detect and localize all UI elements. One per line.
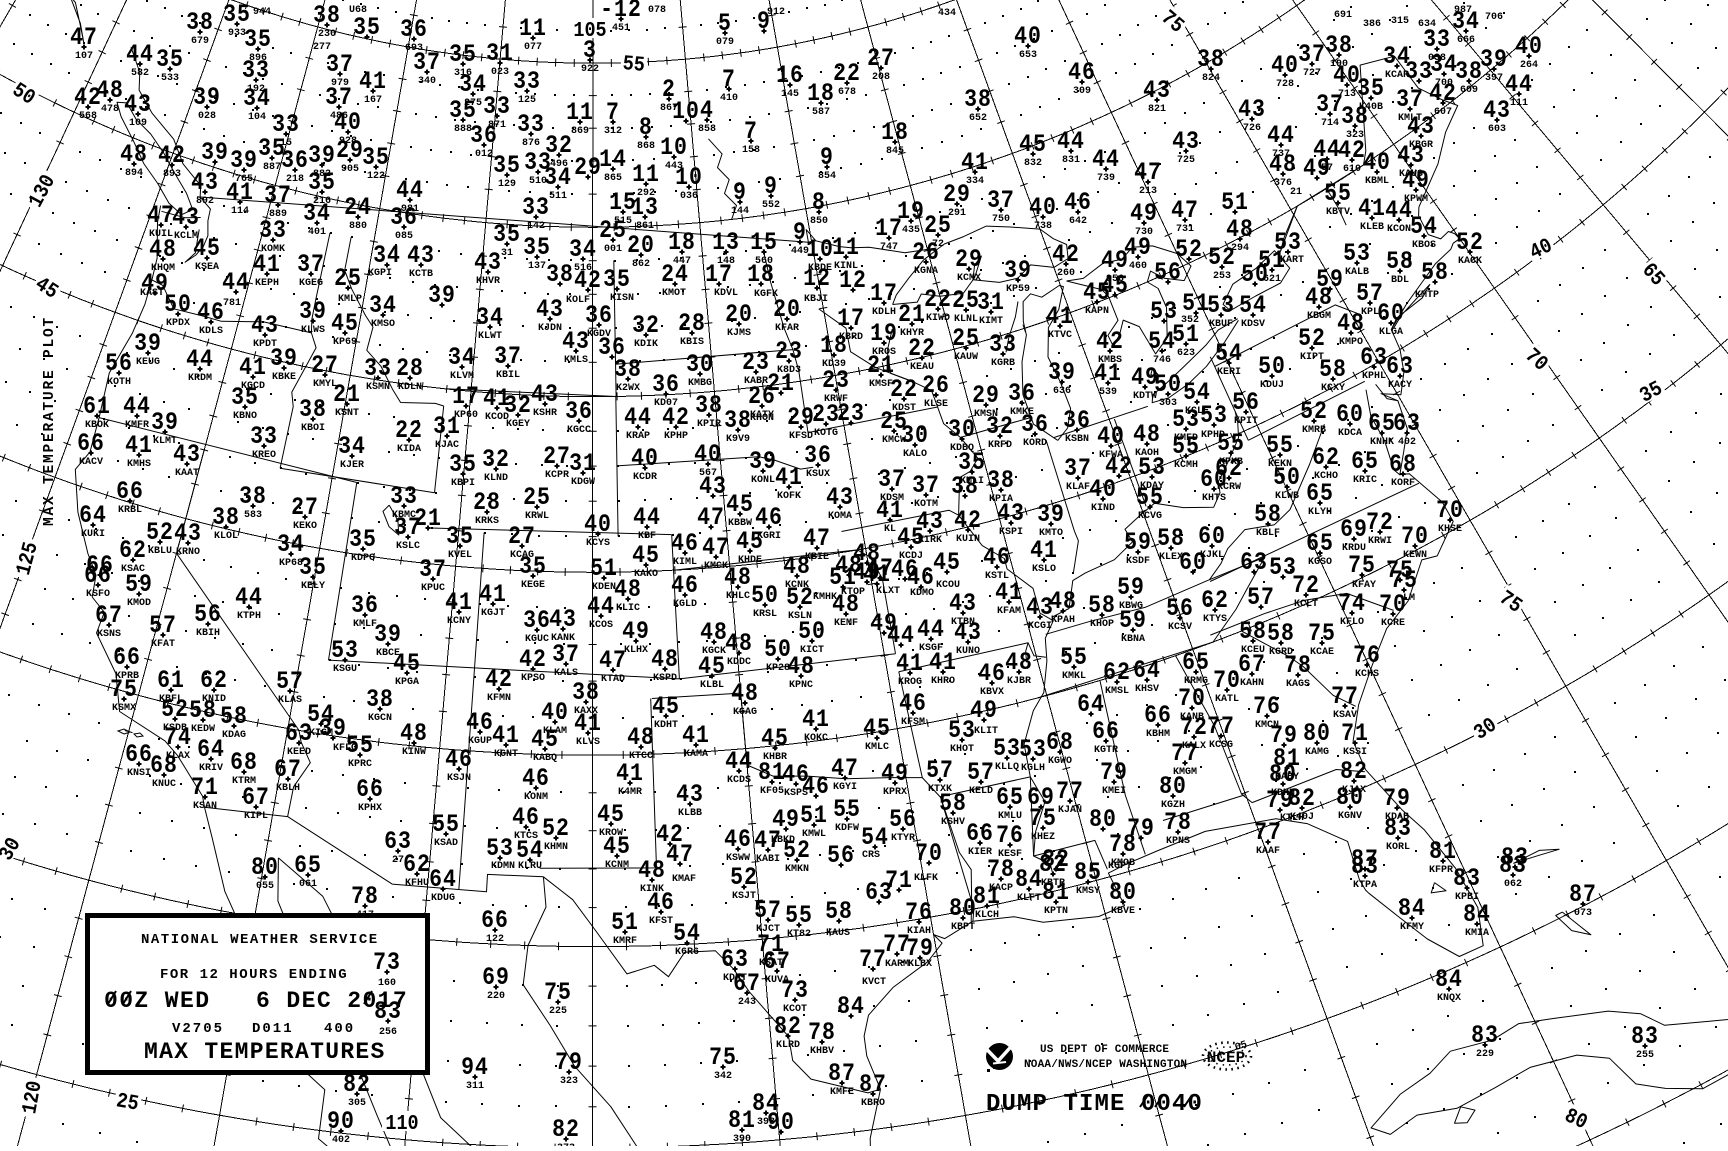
svg-text:386: 386	[1363, 19, 1381, 30]
svg-text:KMOD: KMOD	[127, 598, 151, 609]
svg-text:342: 342	[714, 1071, 732, 1082]
svg-text:KALO: KALO	[903, 449, 927, 460]
svg-text:KCRE: KCRE	[1381, 618, 1405, 629]
svg-text:KAUS: KAUS	[826, 928, 850, 939]
svg-text:KOFK: KOFK	[777, 491, 801, 502]
svg-text:KVEL: KVEL	[448, 550, 472, 561]
svg-text:KPIR: KPIR	[697, 419, 721, 430]
svg-text:208: 208	[872, 72, 890, 83]
svg-text:KNUC: KNUC	[152, 779, 176, 790]
svg-text:K40J: K40J	[1290, 812, 1314, 823]
svg-text:111: 111	[1510, 98, 1528, 109]
svg-text:167: 167	[364, 95, 382, 106]
svg-text:KMRF: KMRF	[613, 936, 637, 947]
svg-text:085: 085	[395, 231, 413, 242]
svg-text:315: 315	[1391, 16, 1409, 27]
svg-text:603: 603	[1488, 124, 1506, 135]
svg-text:KSWW: KSWW	[726, 853, 750, 864]
svg-text:KGPI: KGPI	[368, 268, 392, 279]
svg-text:678: 678	[838, 87, 856, 98]
svg-text:294: 294	[1231, 243, 1249, 254]
svg-text:KGEY: KGEY	[506, 419, 530, 430]
svg-text:KHSE: KHSE	[1438, 524, 1462, 535]
svg-text:KORD: KORD	[1023, 438, 1047, 449]
svg-text:KCPR: KCPR	[545, 470, 569, 481]
svg-text:KPNS: KPNS	[1166, 836, 1190, 847]
svg-text:KCGI: KCGI	[1028, 621, 1052, 632]
svg-text:KJAC: KJAC	[435, 440, 459, 451]
svg-text:568: 568	[79, 111, 97, 122]
svg-text:KBKE: KBKE	[272, 372, 296, 383]
svg-text:KNSI: KNSI	[127, 768, 151, 779]
svg-text:114: 114	[231, 206, 249, 217]
svg-text:KSHV: KSHV	[941, 817, 965, 828]
svg-text:KHON: KHON	[750, 413, 774, 424]
svg-text:264: 264	[1520, 60, 1538, 71]
svg-text:KIWD: KIWD	[926, 313, 950, 324]
svg-text:KLOL: KLOL	[214, 531, 238, 542]
svg-text:KIND: KIND	[1091, 503, 1115, 514]
svg-text:323: 323	[560, 1076, 578, 1087]
svg-text:KBML: KBML	[1365, 176, 1389, 187]
svg-text:KL: KL	[884, 524, 896, 535]
svg-text:887: 887	[263, 162, 281, 173]
svg-text:714: 714	[1321, 118, 1339, 129]
svg-text:747: 747	[880, 242, 898, 253]
svg-text:824: 824	[1202, 73, 1220, 84]
svg-text:25: 25	[115, 1088, 141, 1116]
svg-text:397: 397	[1485, 73, 1503, 84]
svg-text:KDEN: KDEN	[592, 582, 616, 593]
svg-text:077: 077	[524, 42, 542, 53]
svg-text:KTVC: KTVC	[1048, 330, 1072, 341]
svg-text:987: 987	[1454, 5, 1472, 16]
svg-text:KSEA: KSEA	[195, 262, 219, 273]
svg-text:KPGA: KPGA	[395, 677, 419, 688]
svg-text:905: 905	[341, 164, 359, 175]
svg-text:KLYH: KLYH	[1308, 507, 1332, 518]
svg-text:KFSM: KFSM	[901, 717, 925, 728]
svg-text:727: 727	[1303, 68, 1321, 79]
svg-text:KDMO: KDMO	[910, 588, 934, 599]
svg-text:KABI: KABI	[756, 854, 780, 865]
svg-text:KSLO: KSLO	[1032, 564, 1056, 575]
svg-text:KGNV: KGNV	[1338, 811, 1362, 822]
svg-text:NOAA/NWS/NCEP WASHINGTON: NOAA/NWS/NCEP WASHINGTON	[1024, 1059, 1187, 1071]
svg-text:KCLT: KCLT	[1294, 599, 1318, 610]
svg-text:KLRU: KLRU	[518, 861, 542, 872]
svg-text:KDLS: KDLS	[199, 326, 223, 337]
svg-text:KLBL: KLBL	[700, 680, 724, 691]
svg-text:KJBR: KJBR	[1007, 676, 1031, 687]
svg-text:KSPD: KSPD	[653, 673, 677, 684]
svg-text:KFPR: KFPR	[1429, 865, 1453, 876]
svg-text:KDHT: KDHT	[654, 720, 678, 731]
svg-text:KCHS: KCHS	[1355, 669, 1379, 680]
svg-text:311: 311	[466, 1081, 484, 1092]
svg-text:036: 036	[680, 191, 698, 202]
svg-text:KLVM: KLVM	[450, 371, 474, 382]
svg-text:KGCN: KGCN	[368, 713, 392, 724]
svg-text:309: 309	[1073, 86, 1091, 97]
svg-text:511: 511	[549, 191, 567, 202]
svg-text:893: 893	[163, 169, 181, 180]
svg-text:KDLN: KDLN	[398, 382, 422, 393]
svg-text:225: 225	[549, 1006, 567, 1017]
svg-text:KMLU: KMLU	[998, 811, 1022, 822]
svg-text:253: 253	[1213, 271, 1231, 282]
svg-text:434: 434	[938, 8, 956, 19]
svg-text:894: 894	[125, 168, 143, 179]
svg-text:KFLO: KFLO	[1340, 617, 1364, 628]
svg-text:142: 142	[527, 221, 545, 232]
svg-text:V2705: V2705	[172, 1021, 224, 1037]
svg-text:073: 073	[1574, 908, 1592, 919]
svg-text:256: 256	[379, 1027, 397, 1038]
svg-text:122: 122	[486, 934, 504, 945]
svg-text:KGPT: KGPT	[1108, 861, 1132, 872]
svg-text:KACY: KACY	[1388, 380, 1412, 391]
svg-text:KFMY: KFMY	[1400, 922, 1424, 933]
svg-text:KVCT: KVCT	[862, 977, 886, 988]
svg-text:KMRB: KMRB	[1302, 425, 1326, 436]
svg-text:KUKI: KUKI	[81, 529, 105, 540]
svg-text:981: 981	[401, 204, 419, 215]
svg-text:KMKL: KMKL	[1062, 671, 1086, 682]
svg-text:KGWO: KGWO	[1048, 756, 1072, 767]
svg-text:KLHX: KLHX	[624, 645, 648, 656]
svg-text:636: 636	[1053, 386, 1071, 397]
svg-text:KDLH: KDLH	[872, 307, 896, 318]
svg-text:KLEB: KLEB	[1360, 222, 1384, 233]
svg-text:MAX TEMPERATURES: MAX TEMPERATURES	[144, 1039, 386, 1065]
svg-text:109: 109	[129, 118, 147, 129]
svg-text:KCTB: KCTB	[409, 269, 433, 280]
svg-text:KUNO: KUNO	[956, 646, 980, 657]
svg-text:KJDN: KJDN	[538, 323, 562, 334]
svg-text:KBLU: KBLU	[148, 546, 172, 557]
svg-text:KMKN: KMKN	[785, 864, 809, 875]
svg-text:KBUF: KBUF	[1209, 319, 1233, 330]
svg-text:865: 865	[604, 173, 622, 184]
svg-text:731: 731	[1176, 224, 1194, 235]
svg-text:KALS: KALS	[554, 668, 578, 679]
svg-text:KSHR: KSHR	[533, 408, 557, 419]
svg-text:KPHL: KPHL	[1362, 371, 1386, 382]
svg-text:KIML: KIML	[673, 557, 697, 568]
svg-text:KIDA: KIDA	[397, 444, 421, 455]
svg-text:KCVG: KCVG	[1138, 511, 1162, 522]
svg-text:KLNL: KLNL	[954, 314, 978, 325]
svg-text:KGJT: KGJT	[481, 608, 505, 619]
svg-text:KRWI: KRWI	[1368, 536, 1392, 547]
svg-text:KPSO: KPSO	[521, 673, 545, 684]
svg-text:NATIONAL WEATHER SERVICE: NATIONAL WEATHER SERVICE	[141, 932, 379, 948]
svg-text:KGZH: KGZH	[1161, 800, 1185, 811]
svg-text:858: 858	[698, 124, 716, 135]
svg-text:451: 451	[612, 23, 630, 34]
svg-text:KAMA: KAMA	[684, 749, 708, 760]
svg-text:055: 055	[256, 881, 274, 892]
svg-text:K9V9: K9V9	[726, 434, 750, 445]
svg-text:KOKC: KOKC	[804, 733, 828, 744]
svg-text:KBNO: KBNO	[233, 411, 257, 422]
svg-text:746: 746	[1153, 355, 1171, 366]
svg-text:KT82: KT82	[787, 929, 811, 940]
svg-text:390: 390	[733, 1134, 751, 1145]
svg-text:KDAG: KDAG	[222, 730, 246, 741]
svg-text:402: 402	[332, 1135, 350, 1146]
svg-text:KSGU: KSGU	[333, 664, 357, 675]
svg-text:KRAP: KRAP	[626, 431, 650, 442]
svg-text:607: 607	[1434, 107, 1452, 118]
svg-text:KLLQ: KLLQ	[995, 762, 1019, 773]
svg-text:KHBV: KHBV	[810, 1046, 834, 1057]
svg-text:KCSG: KCSG	[1209, 740, 1233, 751]
svg-text:KSMN: KSMN	[366, 382, 390, 393]
svg-text:255: 255	[1636, 1050, 1654, 1061]
svg-text:KMLS: KMLS	[564, 355, 588, 366]
svg-text:KPDX: KPDX	[166, 318, 190, 329]
svg-text:KDGW: KDGW	[571, 477, 595, 488]
svg-text:KBGM: KBGM	[1307, 311, 1331, 322]
svg-text:KORF: KORF	[1391, 478, 1415, 489]
svg-text:KAGS: KAGS	[1286, 679, 1310, 690]
svg-text:KELD: KELD	[969, 786, 993, 797]
svg-text:078: 078	[648, 5, 666, 16]
svg-text:KEMF: KEMF	[834, 618, 858, 629]
svg-text:609: 609	[1460, 85, 1478, 96]
svg-text:MAX TEMPERATURE PLOT: MAX TEMPERATURE PLOT	[42, 316, 58, 526]
svg-text:KRNO: KRNO	[176, 547, 200, 558]
svg-text:KEGE: KEGE	[521, 580, 545, 591]
svg-text:107: 107	[75, 51, 93, 62]
svg-text:KEUG: KEUG	[136, 357, 160, 368]
svg-text:KLIC: KLIC	[616, 603, 640, 614]
svg-text:KREO: KREO	[252, 450, 276, 461]
svg-text:KHVR: KHVR	[476, 276, 500, 287]
svg-text:KSNT: KSNT	[335, 408, 359, 419]
svg-text:US DEPT OF COMMERCE: US DEPT OF COMMERCE	[1040, 1044, 1169, 1056]
svg-text:KBIL: KBIL	[496, 370, 520, 381]
svg-text:KNHK: KNHK	[1370, 437, 1394, 448]
svg-text:KAMG: KAMG	[1305, 747, 1329, 758]
svg-text:21: 21	[1290, 187, 1302, 198]
svg-text:KOTG: KOTG	[814, 428, 838, 439]
svg-text:KDUG: KDUG	[431, 893, 455, 904]
svg-text:KTYR: KTYR	[891, 833, 915, 844]
svg-text:KGNT: KGNT	[494, 749, 518, 760]
svg-text:KLWT: KLWT	[478, 331, 502, 342]
svg-text:KHOP: KHOP	[1090, 619, 1114, 630]
svg-text:KMTP: KMTP	[1415, 290, 1439, 301]
svg-text:400: 400	[324, 1021, 355, 1037]
svg-text:KSMX: KSMX	[112, 703, 136, 714]
svg-text:552: 552	[762, 200, 780, 211]
svg-text:KP59: KP59	[1006, 284, 1030, 295]
svg-text:KGLD: KGLD	[673, 599, 697, 610]
svg-text:KHOT: KHOT	[950, 744, 974, 755]
svg-text:666: 666	[1457, 35, 1475, 46]
svg-text:410: 410	[720, 93, 738, 104]
svg-text:KGYI: KGYI	[833, 782, 857, 793]
svg-text:KGTR: KGTR	[1094, 745, 1118, 756]
svg-text:KART: KART	[1280, 255, 1304, 266]
svg-text:KACP: KACP	[989, 883, 1013, 894]
svg-text:478: 478	[101, 104, 119, 115]
svg-text:KLBB: KLBB	[678, 808, 702, 819]
svg-text:KAPN: KAPN	[1085, 306, 1109, 317]
svg-text:KFST: KFST	[649, 916, 673, 927]
svg-text:KHSV: KHSV	[1135, 684, 1159, 695]
svg-text:KSPI: KSPI	[999, 527, 1023, 538]
svg-text:KLCH: KLCH	[975, 910, 999, 921]
svg-text:KONL: KONL	[751, 475, 775, 486]
svg-text:012: 012	[475, 149, 493, 160]
svg-text:KEPH: KEPH	[255, 278, 279, 289]
svg-text:KARM: KARM	[885, 959, 909, 970]
svg-text:KCNM: KCNM	[605, 860, 629, 871]
svg-text:230: 230	[318, 29, 336, 40]
svg-text:KGUC: KGUC	[525, 634, 549, 645]
svg-text:KMSL: KMSL	[1105, 686, 1129, 697]
svg-text:KHRO: KHRO	[931, 676, 955, 687]
svg-text:KSDF: KSDF	[1126, 556, 1150, 567]
svg-text:726: 726	[1243, 123, 1261, 134]
svg-text:KBIH: KBIH	[196, 628, 220, 639]
svg-text:31: 31	[501, 248, 513, 259]
svg-text:679: 679	[191, 36, 209, 47]
svg-text:KONM: KONM	[524, 792, 548, 803]
svg-text:KAST: KAST	[140, 288, 164, 299]
svg-text:539: 539	[1099, 387, 1117, 398]
svg-text:KSJN: KSJN	[447, 773, 471, 784]
svg-text:KGAG: KGAG	[733, 707, 757, 718]
svg-text:KIPL: KIPL	[244, 811, 268, 822]
svg-text:028: 028	[198, 111, 216, 122]
svg-text:KBLH: KBLH	[276, 783, 300, 794]
svg-text:KMSY: KMSY	[1076, 886, 1100, 897]
svg-text:KRKS: KRKS	[475, 516, 499, 527]
svg-text:876: 876	[522, 138, 540, 149]
svg-text:653: 653	[1019, 50, 1037, 61]
svg-text:KSNS: KSNS	[97, 629, 121, 640]
svg-text:KPTN: KPTN	[1044, 906, 1068, 917]
svg-text:KTAD: KTAD	[601, 674, 625, 685]
svg-text:KDSV: KDSV	[1241, 319, 1265, 330]
svg-text:KHEZ: KHEZ	[1031, 832, 1055, 843]
svg-text:129: 129	[498, 179, 516, 190]
svg-text:KHLC: KHLC	[726, 591, 750, 602]
svg-text:781: 781	[223, 298, 241, 309]
svg-text:213: 213	[1139, 186, 1157, 197]
svg-text:K2WX: K2WX	[616, 383, 640, 394]
svg-text:KRIC: KRIC	[1353, 475, 1377, 486]
svg-text:402: 402	[1398, 437, 1416, 448]
svg-text:401: 401	[308, 227, 326, 238]
svg-text:KAHN: KAHN	[1240, 678, 1264, 689]
svg-text:KDPG: KDPG	[351, 553, 375, 564]
svg-text:KPRC: KPRC	[348, 759, 372, 770]
svg-text:869: 869	[571, 126, 589, 137]
svg-text:KCXY: KCXY	[1321, 383, 1345, 394]
svg-text:832: 832	[1024, 158, 1042, 169]
svg-text:KOTH: KOTH	[107, 377, 131, 388]
svg-text:725: 725	[1177, 155, 1195, 166]
svg-text:145: 145	[781, 89, 799, 100]
svg-text:KIMT: KIMT	[979, 316, 1003, 327]
svg-text:KBF: KBF	[638, 531, 656, 542]
svg-text:KDFW: KDFW	[835, 823, 859, 834]
svg-text:691: 691	[1334, 10, 1352, 21]
svg-text:KERI: KERI	[1217, 367, 1241, 378]
svg-text:KMLC: KMLC	[865, 742, 889, 753]
svg-text:158: 158	[742, 145, 760, 156]
svg-text:KBVE: KBVE	[1111, 906, 1135, 917]
svg-text:KROG: KROG	[898, 677, 922, 688]
svg-text:062: 062	[1504, 879, 1522, 890]
svg-text:KSAD: KSAD	[434, 838, 458, 849]
svg-text:FOR 12 HOURS ENDING: FOR 12 HOURS ENDING	[160, 967, 348, 983]
svg-text:KMFE: KMFE	[830, 1087, 854, 1098]
svg-text:312: 312	[604, 126, 622, 137]
svg-text:583: 583	[244, 510, 262, 521]
svg-text:KRWL: KRWL	[525, 511, 549, 522]
svg-text:125: 125	[518, 95, 536, 106]
svg-text:K6R6: K6R6	[675, 947, 699, 958]
svg-text:KBOI: KBOI	[301, 423, 325, 434]
svg-text:KDCA: KDCA	[1338, 428, 1362, 439]
svg-text:880: 880	[349, 221, 367, 232]
svg-text:110: 110	[385, 1111, 418, 1136]
svg-text:KINW: KINW	[402, 747, 426, 758]
svg-text:460: 460	[1129, 261, 1147, 272]
svg-text:KRFD: KRFD	[988, 440, 1012, 451]
svg-text:KPKB: KPKB	[1219, 457, 1243, 468]
svg-text:KLGA: KLGA	[1379, 327, 1403, 338]
svg-text:KDIK: KDIK	[634, 339, 658, 350]
svg-text:CRS: CRS	[862, 850, 880, 861]
svg-text:KF05: KF05	[760, 786, 784, 797]
svg-text:KCSV: KCSV	[1168, 622, 1192, 633]
svg-text:061: 061	[299, 879, 317, 890]
svg-text:079: 079	[716, 37, 734, 48]
svg-text:D011: D011	[252, 1021, 294, 1037]
svg-text:KMBG: KMBG	[688, 378, 712, 389]
svg-text:KORL: KORL	[1386, 842, 1410, 853]
svg-text:623: 623	[1177, 348, 1195, 359]
svg-text:KLFK: KLFK	[914, 873, 938, 884]
svg-text:861: 861	[636, 221, 654, 232]
svg-text:KDVL: KDVL	[714, 288, 738, 299]
svg-text:KHMN: KHMN	[544, 842, 568, 853]
svg-text:KTPH: KTPH	[237, 611, 261, 622]
svg-text:KMEI: KMEI	[1102, 786, 1126, 797]
svg-text:KLAF: KLAF	[1066, 482, 1090, 493]
svg-text:KLND: KLND	[484, 473, 508, 484]
svg-text:KCDR: KCDR	[633, 472, 657, 483]
svg-text:KPIT: KPIT	[1234, 416, 1258, 427]
svg-text:KCNY: KCNY	[447, 616, 471, 627]
svg-text:KGRB: KGRB	[991, 358, 1015, 369]
svg-text:KCMX: KCMX	[957, 273, 981, 284]
svg-text:KRDM: KRDM	[188, 373, 212, 384]
svg-text:845: 845	[886, 146, 904, 157]
svg-text:922: 922	[581, 64, 599, 75]
svg-text:001: 001	[604, 244, 622, 255]
svg-text:KACK: KACK	[1458, 256, 1482, 267]
svg-text:KSJT: KSJT	[732, 891, 756, 902]
